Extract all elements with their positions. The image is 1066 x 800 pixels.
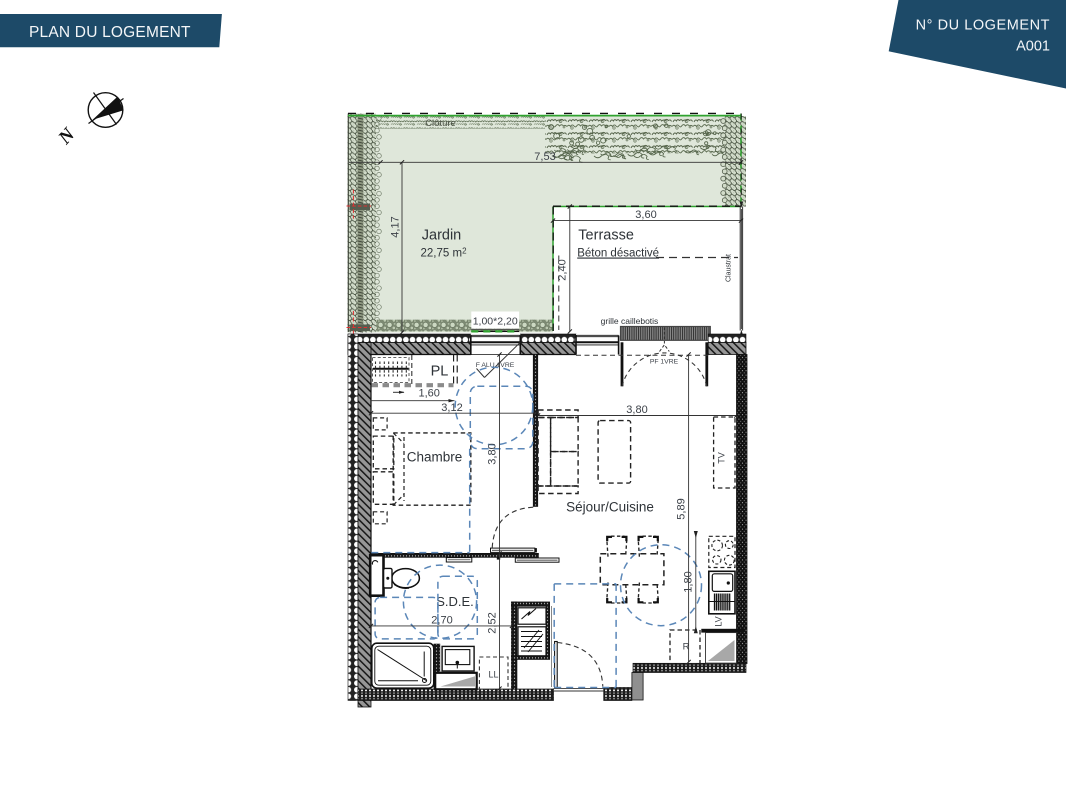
svg-text:Terrasse: Terrasse xyxy=(578,228,634,244)
svg-text:Séjour/Cuisine: Séjour/Cuisine xyxy=(566,500,654,515)
svg-text:Jardin: Jardin xyxy=(422,228,462,244)
svg-text:4,17: 4,17 xyxy=(389,216,401,237)
svg-text:3,80: 3,80 xyxy=(626,404,647,416)
svg-text:LV: LV xyxy=(714,616,724,626)
svg-text:A001: A001 xyxy=(1016,39,1050,55)
svg-text:S.D.E.: S.D.E. xyxy=(436,594,474,609)
svg-text:Chambre: Chambre xyxy=(407,450,463,465)
svg-text:2,52: 2,52 xyxy=(486,612,498,633)
svg-text:5,89: 5,89 xyxy=(675,498,687,519)
svg-text:N: N xyxy=(54,123,80,149)
svg-text:TV: TV xyxy=(717,452,727,464)
svg-text:F ALU 1VRE: F ALU 1VRE xyxy=(476,362,515,369)
svg-text:3,12: 3,12 xyxy=(441,402,462,414)
svg-text:N° DU LOGEMENT: N° DU LOGEMENT xyxy=(916,18,1050,34)
svg-text:grille caillebotis: grille caillebotis xyxy=(601,316,659,326)
svg-text:7,53: 7,53 xyxy=(534,151,555,163)
svg-text:Clôture: Clôture xyxy=(425,118,456,129)
svg-text:PL: PL xyxy=(431,364,449,380)
svg-text:2,70: 2,70 xyxy=(431,615,452,627)
svg-text:1,00*2,20: 1,00*2,20 xyxy=(473,316,518,328)
svg-text:PLAN DU LOGEMENT: PLAN DU LOGEMENT xyxy=(29,24,191,41)
svg-text:2,40: 2,40 xyxy=(557,259,569,280)
svg-text:1,60: 1,60 xyxy=(419,388,440,400)
svg-text:3,60: 3,60 xyxy=(635,209,656,221)
svg-text:PF 1VRE: PF 1VRE xyxy=(650,359,679,366)
svg-text:1,80: 1,80 xyxy=(683,571,695,592)
svg-text:22,75 m2: 22,75 m2 xyxy=(421,247,468,260)
svg-text:LL: LL xyxy=(488,670,498,680)
svg-text:Claustrat: Claustrat xyxy=(726,254,733,282)
svg-text:3,80: 3,80 xyxy=(486,443,498,464)
svg-text:Béton désactivé: Béton désactivé xyxy=(577,248,659,260)
